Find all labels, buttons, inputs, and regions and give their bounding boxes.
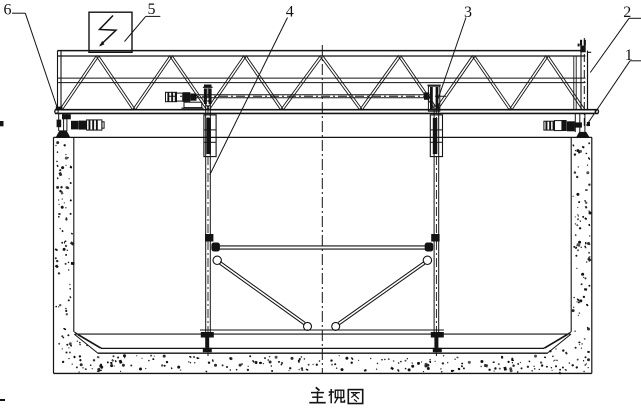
svg-text:5: 5 — [148, 1, 156, 18]
svg-text:6: 6 — [4, 2, 12, 19]
